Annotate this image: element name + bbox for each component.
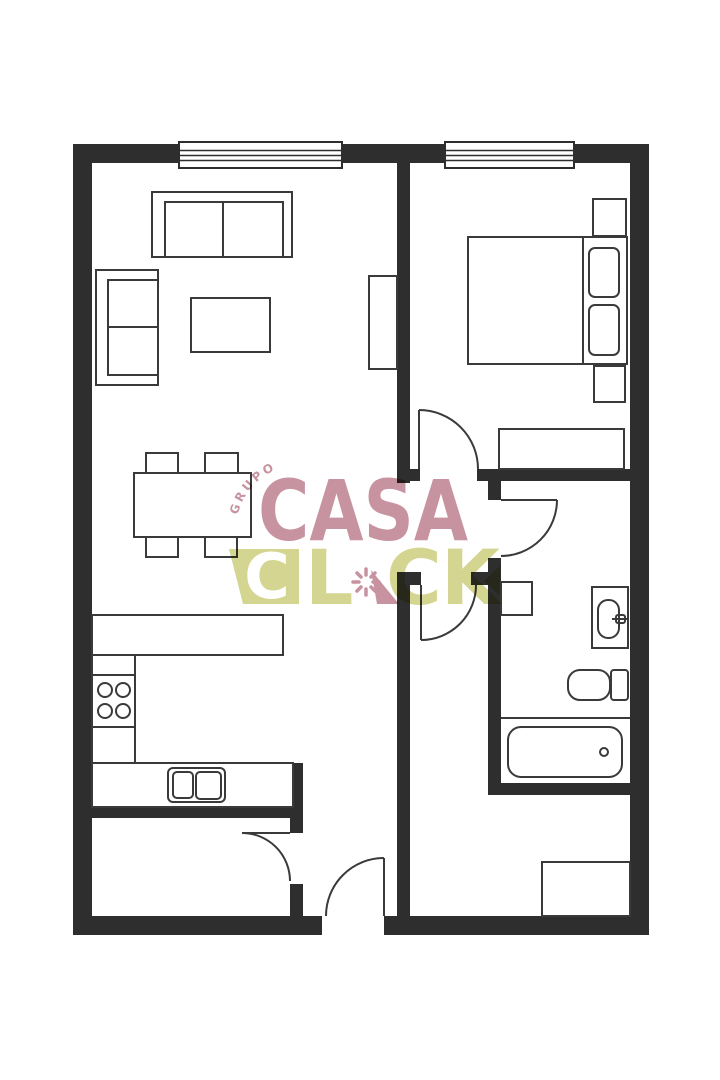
coffee-table xyxy=(191,298,270,352)
living-room xyxy=(96,192,397,385)
door-storage-room xyxy=(242,833,290,881)
dining-chair xyxy=(146,453,178,473)
wall-storage-right-lower xyxy=(290,884,303,916)
bedroom xyxy=(468,199,627,469)
washbasin-icon xyxy=(592,587,629,648)
nightstand xyxy=(593,199,626,236)
wall-bottom-right xyxy=(384,916,649,935)
dining-chair xyxy=(146,537,178,557)
wall-central-upper xyxy=(397,163,410,483)
wall-bathroom-bottom xyxy=(488,783,630,795)
door-swing-arc xyxy=(419,410,478,469)
hall-closet xyxy=(542,862,630,916)
sink-icon xyxy=(168,768,225,802)
door-bedroom xyxy=(419,410,478,469)
toilet-icon xyxy=(568,670,628,700)
hallway xyxy=(542,862,630,916)
wall-top-middle xyxy=(341,144,446,163)
wall-central-lower xyxy=(397,572,410,916)
floor-plan-page: GRUPO CASA C L C K xyxy=(0,0,720,1080)
door-bathroom xyxy=(501,500,557,556)
dining-chair xyxy=(205,453,238,473)
toilet-bowl xyxy=(568,670,610,700)
window-living-room xyxy=(179,142,342,168)
kitchen xyxy=(92,615,293,807)
watermark-click-c1: C xyxy=(244,540,290,613)
toilet-tank xyxy=(611,670,628,700)
door-entrance xyxy=(326,858,384,916)
door-swing-arc xyxy=(501,500,557,556)
floor-plan: GRUPO CASA C L C K xyxy=(0,0,720,1080)
tub xyxy=(508,727,622,777)
wall-bottom-left xyxy=(73,916,322,935)
window-bedroom xyxy=(445,142,574,168)
kitchen-counter-top xyxy=(92,615,283,655)
stove-icon xyxy=(92,675,135,727)
wall-bathroom-left-upper xyxy=(488,481,501,500)
watermark-click-l: L xyxy=(305,533,353,622)
wardrobe xyxy=(499,429,624,469)
stove-body xyxy=(92,675,135,727)
washer xyxy=(501,582,532,615)
door-swing-arc xyxy=(326,858,384,916)
wall-bedroom-bottom xyxy=(477,469,630,481)
tv-console xyxy=(369,276,397,369)
double-bed xyxy=(468,237,627,364)
door-swing-arc xyxy=(242,833,290,881)
bathroom xyxy=(501,582,630,777)
bathtub-icon xyxy=(501,718,630,777)
watermark-click-c2: C xyxy=(386,533,442,622)
watermark-casa-click: GRUPO CASA C L C K xyxy=(227,459,503,622)
nightstand xyxy=(594,366,625,402)
wall-right xyxy=(630,144,649,935)
